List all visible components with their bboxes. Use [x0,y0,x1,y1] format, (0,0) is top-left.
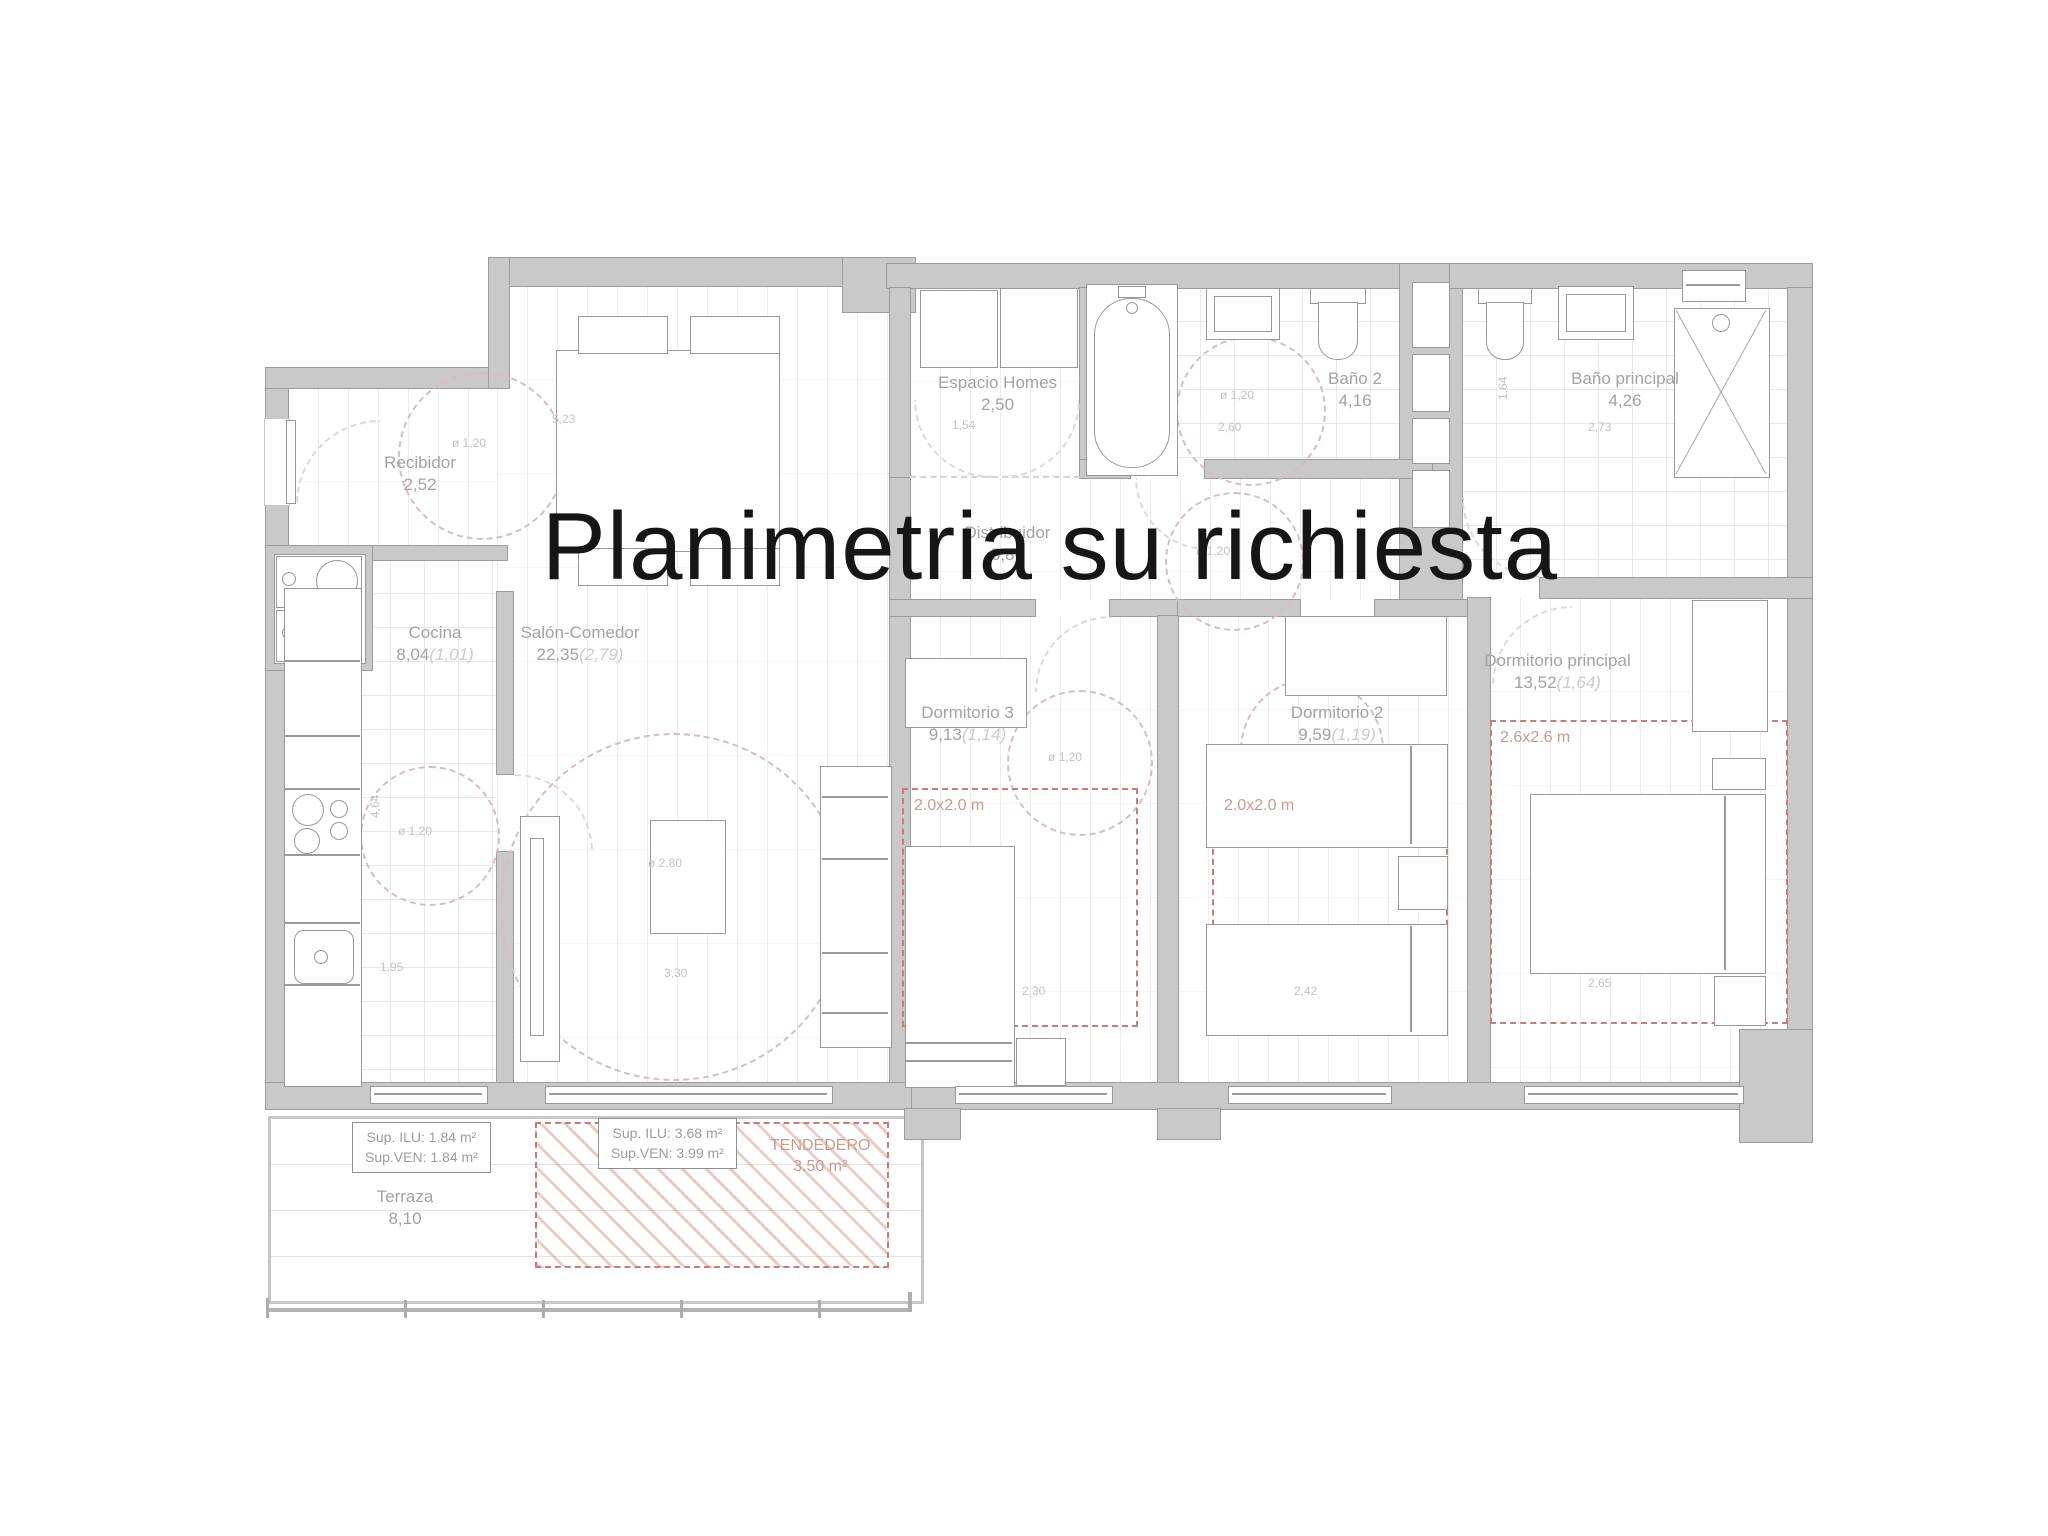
sink-drain-icon [314,950,328,964]
dim-dormp-width: 2,65 [1588,976,1611,990]
cooktop-burner-icon [292,794,324,826]
window-banop-glass-line [1686,284,1740,286]
clearance-label-dormp: 2.6x2.6 m [1500,728,1570,749]
room-vent: (1,64) [1557,673,1601,692]
dim-dorm2-width: 2,42 [1294,984,1317,998]
shaft-duct [1412,418,1450,464]
dim-recibidor-circle: ø 1,20 [452,436,486,450]
room-vent: (1,19) [1331,725,1375,744]
room-area: 9,59 [1298,725,1331,744]
counter-divider [284,735,360,737]
wall-right [1788,288,1812,1108]
dim-dorm3-width: 2,30 [1022,984,1045,998]
window-salon [545,1086,833,1104]
nightstand [1714,976,1766,1026]
counter-divider [284,922,360,924]
railing-tick [404,1300,407,1318]
nightstand [1398,856,1448,910]
closet-module [920,290,998,368]
toilet-bowl [1318,302,1358,360]
nightstand [1712,758,1766,790]
room-label-dormitorio3: Dormitorio 3 9,13(1,14) [905,702,1030,746]
coffee-table [650,820,726,934]
window-dorm2 [1228,1086,1392,1104]
room-name: Recibidor [360,452,480,474]
wall-corner-block [1740,1030,1812,1142]
counter-divider [284,660,360,662]
terrace-railing [266,1308,912,1312]
tendedero-area: 3.50 m² [793,1158,847,1175]
wall-dorm3-top-right [1110,600,1178,616]
room-label-salon: Salón-Comedor 22,35(2,79) [500,622,660,666]
wall-cocina-salon-upper [497,592,513,774]
shaft-duct [1412,282,1450,348]
window-bano-principal [1682,270,1746,302]
room-label-cocina: Cocina 8,04(1,01) [370,622,500,666]
dim-cocina-circle: ø 1,20 [398,824,432,838]
clearance-label-dorm2: 2.0x2.0 m [1224,796,1294,817]
dim-cocina-window: 1,95 [380,960,403,974]
sup-ven-line: Sup.VEN: 3.99 m² [611,1143,724,1163]
dim-banop-width: 2,73 [1588,420,1611,434]
room-area: 8,10 [388,1209,421,1228]
dim-dorm3-circle: ø 1,20 [1048,750,1082,764]
room-name: Espacio Homes [935,372,1060,394]
room-label-bano2: Baño 2 4,16 [1300,368,1410,412]
wardrobe [1285,616,1447,696]
clearance-label-dorm3: 2.0x2.0 m [914,796,984,817]
bed-double [1530,794,1766,974]
entrance-door-leaf [286,420,296,504]
room-area: 2,50 [981,395,1014,414]
wall-corner-connector [489,258,509,388]
room-label-terraza: Terraza 8,10 [355,1186,455,1230]
sofa-seat-line [822,858,888,860]
dim-espacio-width: 1,54 [952,418,975,432]
dim-bano2-width: 2,60 [1218,420,1241,434]
wall-stub [905,1109,960,1139]
counter-divider [284,788,360,790]
bathtub-tap-icon [1118,286,1146,298]
room-name: Dormitorio 2 [1272,702,1402,724]
railing-tick [542,1300,545,1318]
dim-salon-width: 5,23 [552,412,575,426]
dim-cocina-depth: 4,64 [368,795,382,818]
room-area: 4,16 [1338,391,1371,410]
window-cocina-glass-line [374,1093,482,1095]
room-area: 9,13 [929,725,962,744]
room-label-dormitorio2: Dormitorio 2 9,59(1,19) [1272,702,1402,746]
room-vent: (2,79) [579,645,623,664]
window-salon-glass-line [549,1093,827,1095]
wall-top-salon [497,258,887,286]
railing-tick [818,1300,821,1318]
window-dorm3 [955,1086,1113,1104]
cooktop-burner-icon [330,800,348,818]
page-title: Planimetria su richiesta [470,492,1630,602]
tendedero-label: TENDEDERO 3.50 m² [770,1136,870,1178]
room-name: Baño 2 [1300,368,1410,390]
room-name: Baño principal [1555,368,1695,390]
bed-headboard-line [1724,796,1726,970]
bed-headboard-line [1410,746,1412,844]
washer-knob-icon [282,572,296,586]
espacio-open-front-dashed [910,476,1080,478]
room-vent: (1,01) [429,645,473,664]
floor-plan: 2.0x2.0 m 2.0x2.0 m 2.6x2.6 m Sup. ILU: … [0,0,2048,1536]
counter-divider [284,854,360,856]
wardrobe [1692,600,1768,732]
nightstand [1016,1038,1066,1086]
tendedero-name: TENDEDERO [770,1136,870,1157]
bed-single [905,846,1015,1088]
chair [578,316,668,354]
cooktop-burner-icon [294,828,320,854]
room-name: Dormitorio principal [1475,650,1640,672]
room-label-bano-principal: Baño principal 4,26 [1555,368,1695,412]
room-area: 4,26 [1608,391,1641,410]
room-area: 8,04 [396,645,429,664]
window-dorm3-glass-line [959,1093,1107,1095]
sofa-seat-line [822,1012,888,1014]
sup-ilu-line: Sup. ILU: 1.84 m² [365,1127,478,1147]
sofa-seat-line [822,952,888,954]
toilet-bowl [1486,302,1524,360]
bed-headboard-line [1410,926,1412,1032]
bathtub-drain-icon [1126,302,1138,314]
room-name: Salón-Comedor [500,622,660,644]
wall-stub [1158,1109,1220,1139]
shaft-duct [1412,354,1450,412]
dim-bano2-circle: ø 1,20 [1220,388,1254,402]
wall-dorm2-top-right [1375,600,1468,616]
cooktop-burner-icon [330,822,348,840]
window-dormp-glass-line [1528,1093,1738,1095]
washbasin-inner [1566,294,1626,332]
window-dormp [1524,1086,1744,1104]
tv-unit-shelf [530,838,544,1036]
railing-end-hook [908,1292,912,1312]
window-dorm2-glass-line [1232,1093,1386,1095]
room-vent: (1,14) [962,725,1006,744]
wall-espacio-left [890,288,910,478]
chair [690,316,780,354]
bed-pillow-line [906,1060,1012,1062]
dim-salon-circle: ø 2,80 [648,856,682,870]
room-area: 22,35 [537,645,580,664]
dim-salon-window: 3,30 [664,966,687,980]
bed-pillow-line [906,1042,1012,1044]
room-label-espacio-homes: Espacio Homes 2,50 [935,372,1060,416]
room-name: Terraza [355,1186,455,1208]
wall-dorm3-top-left [890,600,1035,616]
sup-ven-line: Sup.VEN: 1.84 m² [365,1147,478,1167]
sup-ilu-line: Sup. ILU: 3.68 m² [611,1123,724,1143]
room-label-recibidor: Recibidor 2,52 [360,452,480,496]
wall-top-right [1450,264,1812,288]
room-name: Cocina [370,622,500,644]
wall-dorm3-dorm2 [1158,616,1178,1083]
railing-tick [680,1300,683,1318]
sup-box-tendedero: Sup. ILU: 3.68 m² Sup.VEN: 3.99 m² [598,1118,737,1169]
room-area: 13,52 [1514,673,1557,692]
room-area: 2,52 [403,475,436,494]
washbasin-inner [1214,296,1272,332]
bathtub-inner [1094,298,1170,468]
closet-module [1000,288,1078,368]
dim-banop-depth: 1,64 [1496,377,1510,400]
window-cocina [370,1086,488,1104]
sup-box-terraza: Sup. ILU: 1.84 m² Sup.VEN: 1.84 m² [352,1122,491,1173]
counter-divider [284,984,360,986]
sofa-seat-line [822,796,888,798]
sofa [820,766,892,1048]
railing-tick [266,1298,269,1318]
room-label-dormitorio-principal: Dormitorio principal 13,52(1,64) [1475,650,1640,694]
room-name: Dormitorio 3 [905,702,1030,724]
